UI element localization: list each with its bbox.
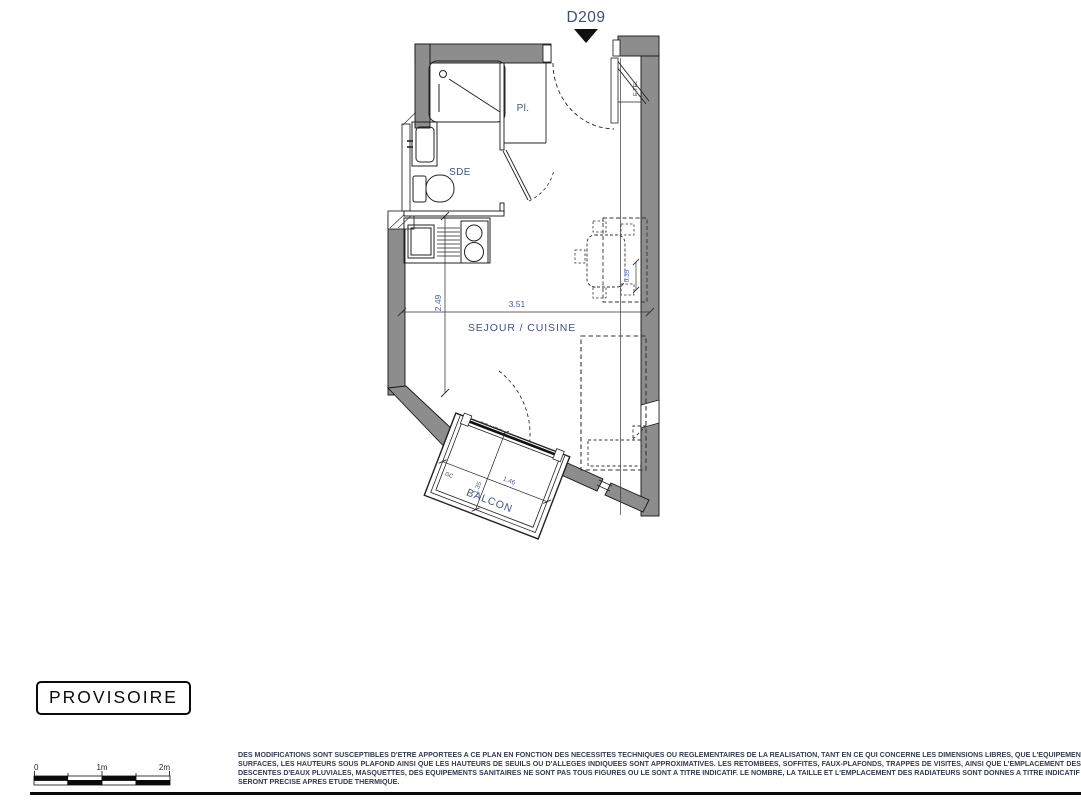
disclaimer-text: DES MODIFICATIONS SONT SUSCEPTIBLES D'ET…	[238, 751, 1081, 787]
scale-label-1m: 1m	[96, 763, 107, 772]
floor-plan-page: E.TEL PF VRE 1.46 1.3	[0, 0, 1081, 800]
provisoire-stamp-label: PROVISOIRE	[49, 687, 178, 707]
kitchen-counter	[404, 218, 490, 263]
room-label-closet: Pl.	[517, 103, 530, 114]
bottom-rule	[30, 792, 1081, 795]
provisoire-stamp: PROVISOIRE	[36, 681, 191, 715]
scale-label-2m: 2m	[159, 763, 170, 772]
unit-label: D209	[566, 9, 605, 26]
dim-kitchen-depth: 2.49	[433, 294, 443, 311]
dim-living-width: 3.51	[509, 299, 526, 309]
sde-door	[503, 150, 554, 201]
entrance-marker-icon	[574, 29, 598, 43]
room-label-living: SEJOUR / CUISINE	[468, 322, 576, 334]
disclaimer-line-2: SURFACES, LES HAUTEURS SOUS PLAFOND AINS…	[238, 760, 1081, 769]
disclaimer-line-3: DESCENTES D'EAUX PLUVIALES, MASQUETTES, …	[238, 769, 1081, 778]
toilet	[413, 175, 454, 202]
disclaimer-line-1: DES MODIFICATIONS SONT SUSCEPTIBLES D'ET…	[238, 751, 1081, 760]
room-label-sde: SDE	[449, 167, 471, 178]
electrical-panel-label: E.TEL	[633, 81, 639, 96]
bed	[581, 336, 646, 470]
floor-plan-drawing: E.TEL PF VRE 1.46 1.3	[0, 0, 1081, 800]
scale-bar-segments	[34, 771, 170, 785]
dim-soffit: 0.35	[624, 269, 631, 282]
shower	[429, 61, 505, 122]
sink	[407, 122, 437, 166]
scale-label-0: 0	[34, 763, 39, 772]
disclaimer-line-4: SERONT PRECISE APRES ETUDE THERMIQUE.	[238, 778, 1081, 787]
